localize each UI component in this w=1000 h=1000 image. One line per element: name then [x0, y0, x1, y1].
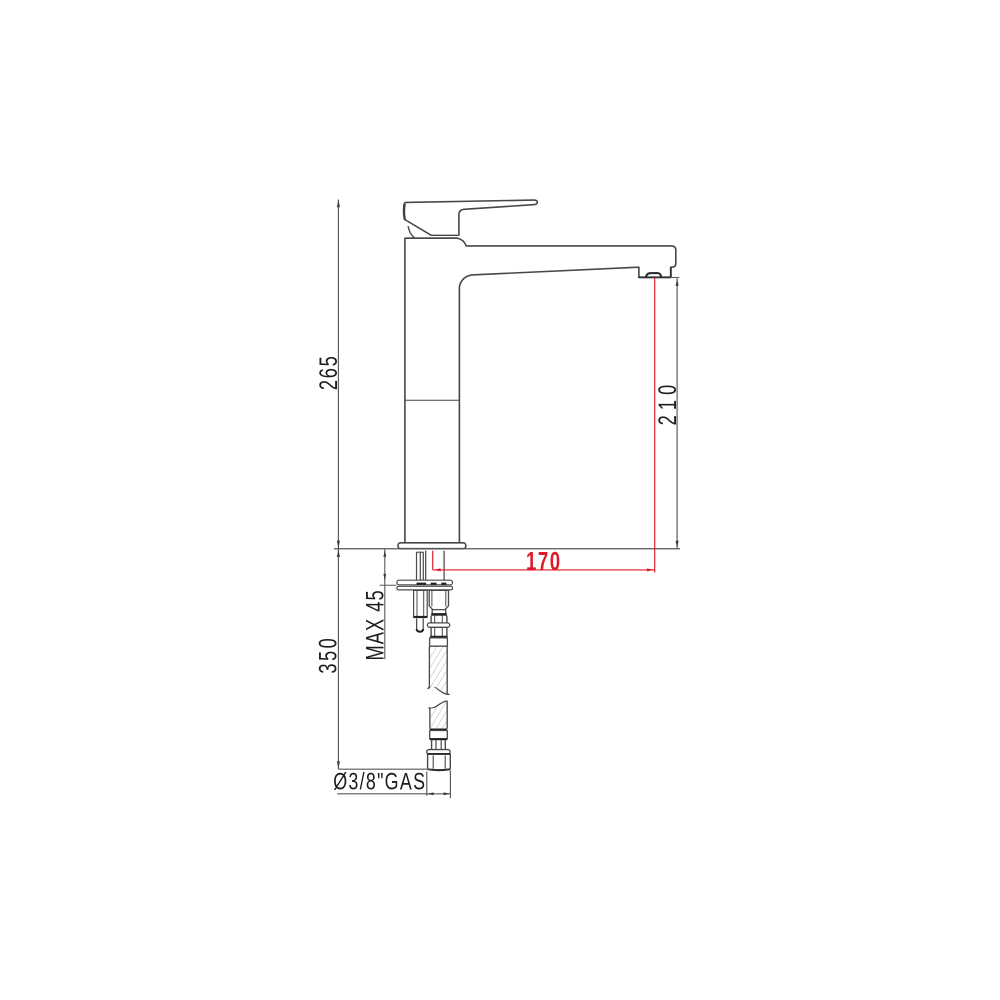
svg-text:350: 350 [314, 636, 343, 674]
svg-text:170: 170 [526, 547, 562, 576]
svg-text:210: 210 [653, 380, 682, 426]
svg-text:265: 265 [314, 354, 343, 390]
svg-text:Ø3/8"GAS: Ø3/8"GAS [333, 768, 426, 795]
svg-text:MAX 45: MAX 45 [361, 589, 390, 660]
